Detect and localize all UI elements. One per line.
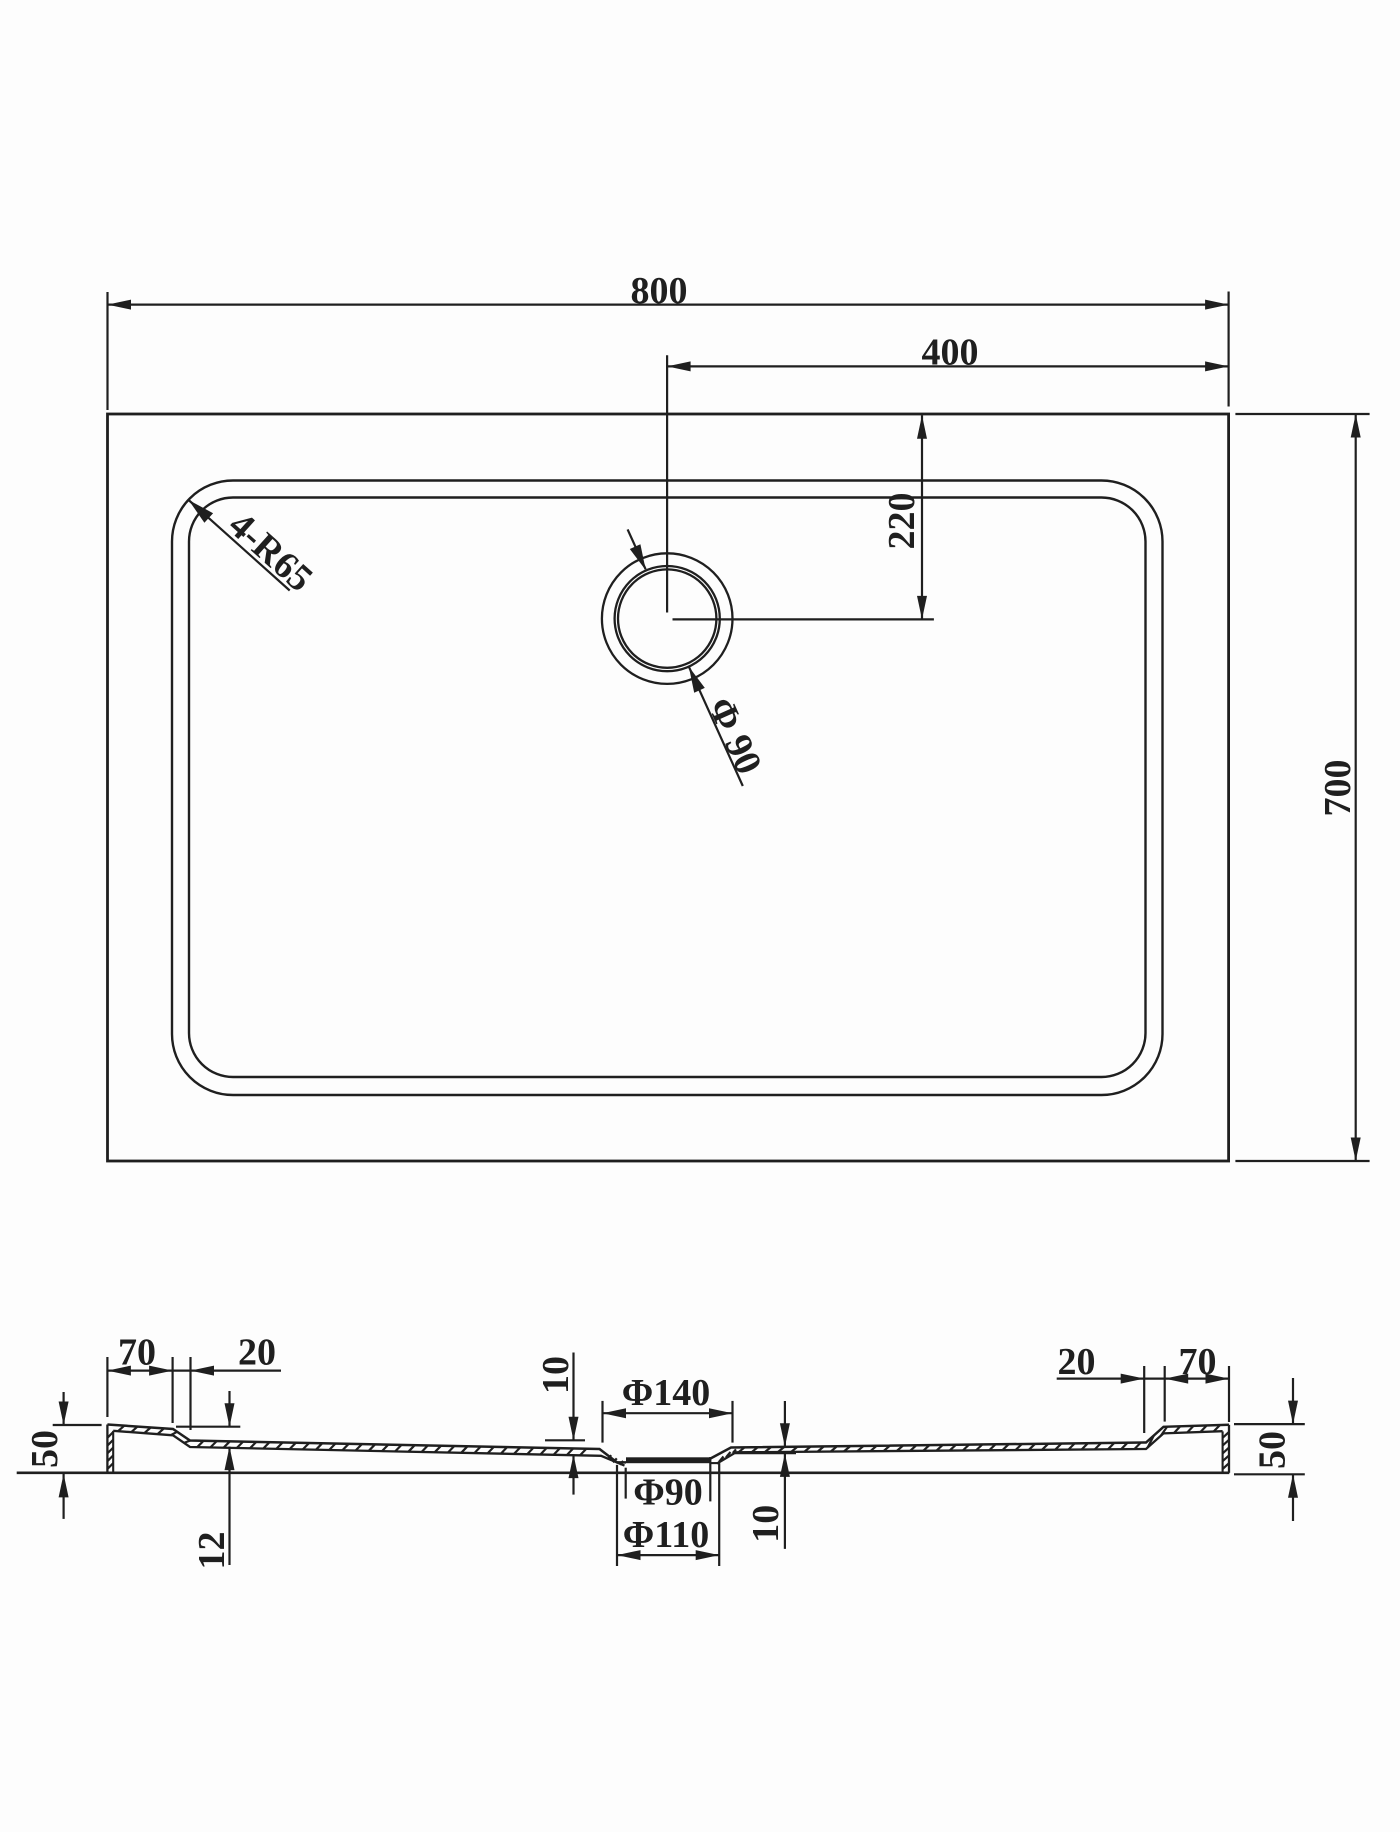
svg-text:10: 10 xyxy=(535,1356,577,1394)
svg-text:700: 700 xyxy=(1317,760,1359,817)
svg-text:50: 50 xyxy=(24,1430,66,1468)
svg-text:400: 400 xyxy=(922,332,979,374)
svg-text:800: 800 xyxy=(631,270,688,312)
svg-text:20: 20 xyxy=(1058,1341,1096,1383)
svg-text:12: 12 xyxy=(191,1532,233,1570)
svg-text:220: 220 xyxy=(881,493,923,550)
svg-text:Φ110: Φ110 xyxy=(623,1514,709,1556)
svg-text:20: 20 xyxy=(238,1332,276,1374)
svg-text:Φ90: Φ90 xyxy=(633,1472,703,1514)
svg-text:70: 70 xyxy=(118,1332,156,1374)
svg-text:10: 10 xyxy=(745,1505,787,1543)
svg-text:50: 50 xyxy=(1252,1431,1294,1469)
svg-text:Φ140: Φ140 xyxy=(622,1372,711,1414)
svg-text:70: 70 xyxy=(1179,1341,1217,1383)
